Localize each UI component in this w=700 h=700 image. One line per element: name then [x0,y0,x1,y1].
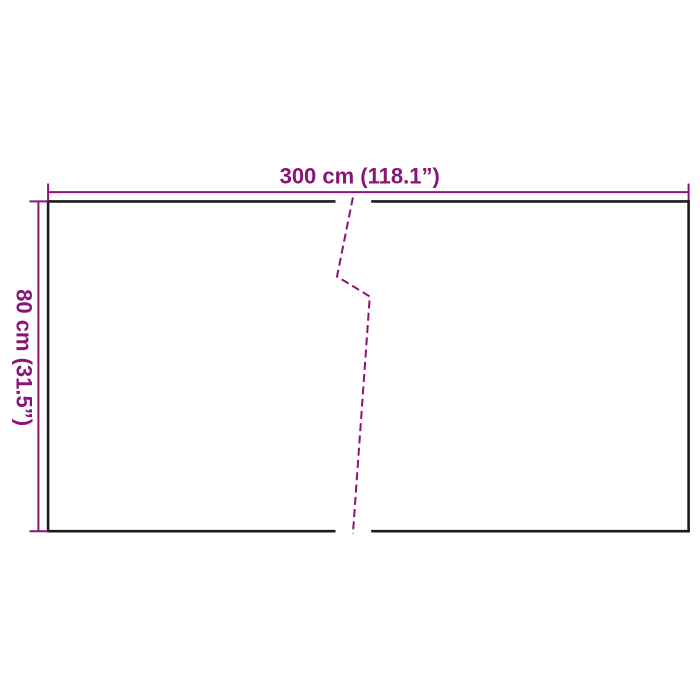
svg-text:80 cm (31.5”): 80 cm (31.5”) [12,289,37,426]
svg-text:300 cm (118.1”): 300 cm (118.1”) [280,164,440,189]
